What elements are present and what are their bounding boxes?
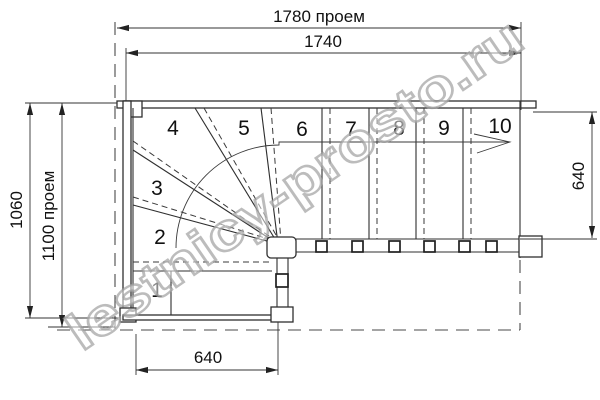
step-label-10: 10 bbox=[488, 115, 511, 138]
dim-label-640-right: 640 bbox=[569, 162, 588, 190]
baluster-1 bbox=[316, 241, 327, 252]
baluster-7 bbox=[276, 274, 288, 287]
bottom-newel-post bbox=[271, 307, 293, 322]
baluster-2 bbox=[352, 241, 363, 252]
baluster-5 bbox=[459, 241, 470, 252]
dimension-right-width: 640 bbox=[520, 112, 597, 239]
dim-label-1740: 1740 bbox=[304, 32, 342, 51]
baluster-4 bbox=[424, 241, 435, 252]
step-label-4: 4 bbox=[167, 117, 179, 140]
baluster-3 bbox=[389, 241, 400, 252]
dim-label-1780: 1780 проем bbox=[273, 7, 365, 26]
staircase-floor-plan: 1 2 3 4 5 6 7 8 9 10 1780 проем 1740 106… bbox=[0, 0, 600, 400]
central-newel-post bbox=[267, 237, 296, 258]
top-beam bbox=[117, 101, 536, 108]
step-label-3: 3 bbox=[151, 177, 163, 200]
step-label-6: 6 bbox=[296, 118, 308, 141]
dim-label-1100: 1100 проем bbox=[39, 171, 58, 262]
dim-label-640-bottom: 640 bbox=[194, 348, 222, 367]
dim-label-1060: 1060 bbox=[7, 191, 26, 229]
step-label-5: 5 bbox=[238, 117, 250, 140]
baluster-6 bbox=[486, 241, 497, 252]
plan-drawing: 1 2 3 4 5 6 7 8 9 10 1780 проем 1740 106… bbox=[0, 0, 600, 400]
railing bbox=[267, 236, 542, 322]
